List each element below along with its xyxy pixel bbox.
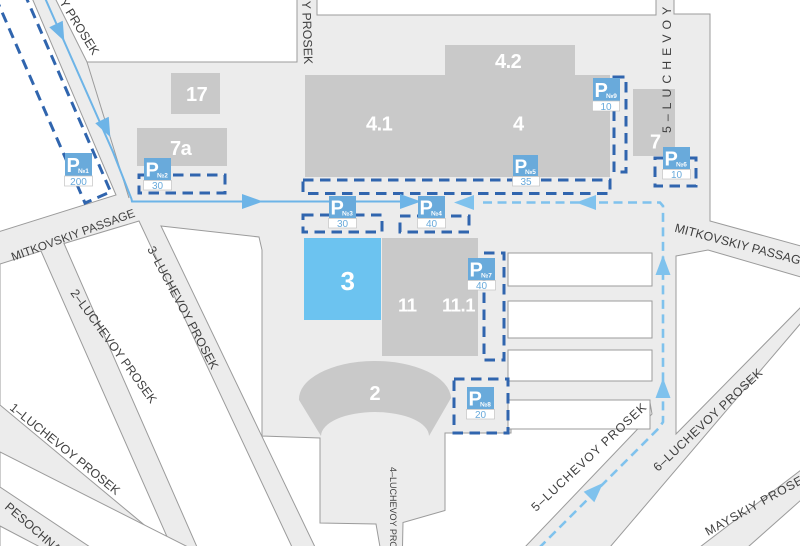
svg-text:4–LUCHEVOY PROSEK: 4–LUCHEVOY PROSEK [388, 467, 398, 546]
svg-text:5–LUCHEVOY: 5–LUCHEVOY [660, 2, 674, 133]
svg-text:17: 17 [186, 84, 208, 106]
svg-text:№1: №1 [78, 168, 89, 175]
svg-text:№8: №8 [480, 402, 491, 409]
svg-text:11: 11 [398, 295, 417, 316]
svg-text:№6: №6 [676, 162, 687, 169]
svg-text:40: 40 [426, 219, 438, 230]
svg-text:№7: №7 [481, 273, 492, 280]
svg-text:3: 3 [341, 266, 355, 296]
svg-text:10: 10 [600, 102, 612, 113]
svg-text:№9: №9 [606, 93, 617, 100]
svg-text:4.1: 4.1 [366, 114, 393, 136]
svg-text:20: 20 [475, 410, 487, 421]
svg-text:200: 200 [70, 177, 87, 188]
svg-text:Y PROSEK: Y PROSEK [299, 1, 315, 66]
svg-text:№4: №4 [431, 211, 442, 218]
svg-text:2: 2 [370, 383, 381, 405]
svg-text:7a: 7a [170, 138, 193, 160]
svg-text:№5: №5 [525, 169, 536, 176]
svg-text:№3: №3 [342, 211, 353, 218]
svg-text:10: 10 [671, 170, 683, 181]
svg-text:4: 4 [513, 114, 525, 136]
svg-text:30: 30 [337, 219, 349, 230]
svg-text:7: 7 [650, 132, 661, 154]
svg-text:35: 35 [520, 177, 532, 188]
svg-text:№2: №2 [157, 173, 168, 180]
svg-text:30: 30 [152, 181, 164, 192]
svg-text:40: 40 [476, 281, 488, 292]
svg-text:11.1: 11.1 [442, 295, 475, 316]
svg-text:4.2: 4.2 [495, 51, 522, 73]
